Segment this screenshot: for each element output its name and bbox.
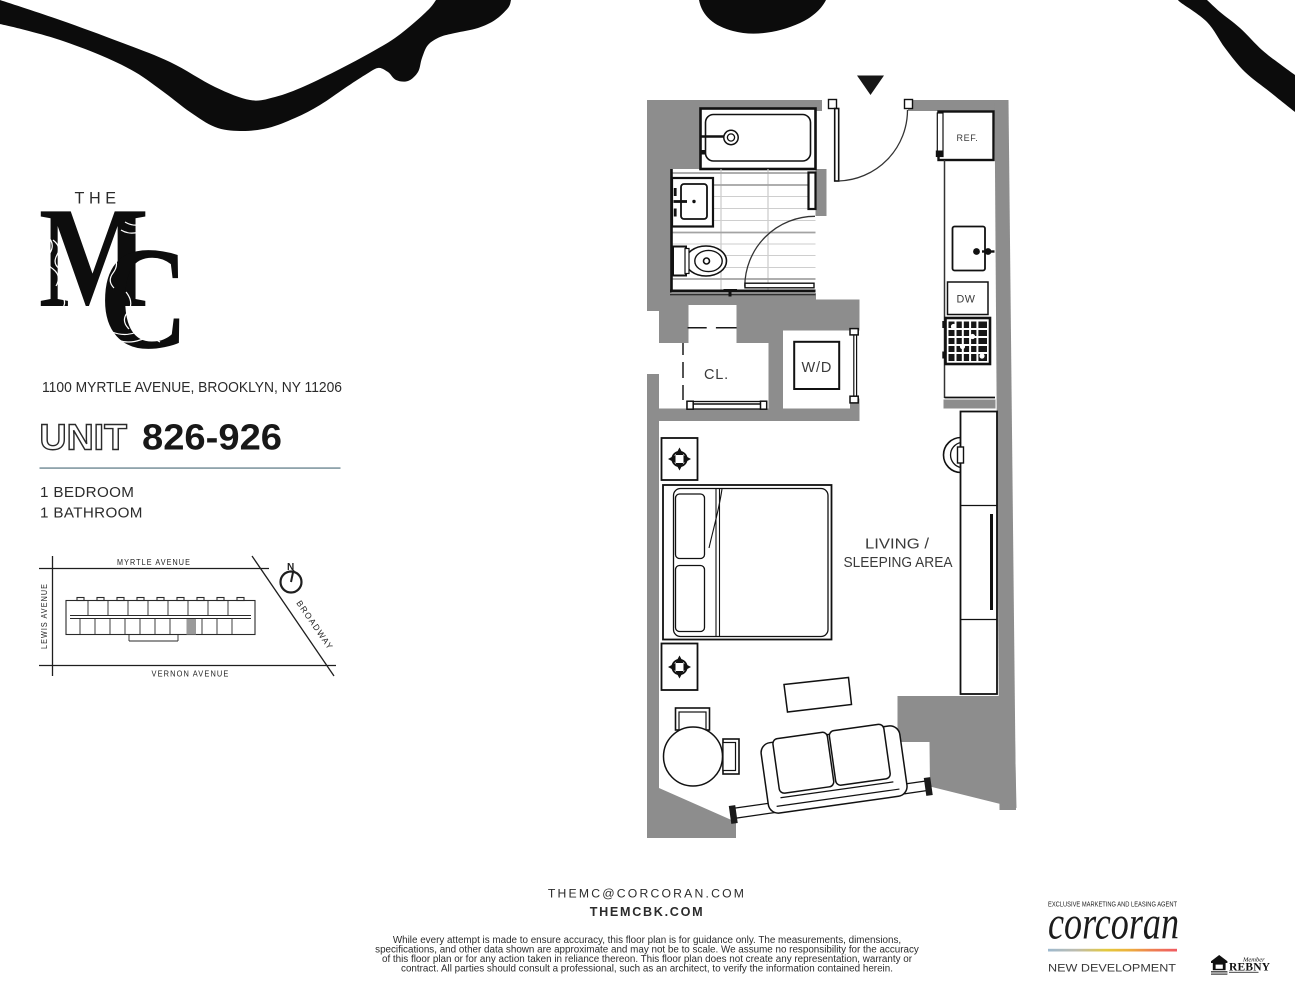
svg-text:contract. All parties should c: contract. All parties should consult a p…	[401, 964, 893, 975]
svg-text:BROADWAY: BROADWAY	[294, 598, 335, 651]
svg-text:CL.: CL.	[704, 367, 729, 383]
svg-text:C: C	[99, 218, 189, 380]
svg-text:corcoran: corcoran	[1048, 898, 1179, 950]
svg-text:826-926: 826-926	[142, 417, 282, 458]
svg-text:UNIT: UNIT	[40, 417, 128, 458]
svg-text:THEMC@CORCORAN.COM: THEMC@CORCORAN.COM	[548, 887, 746, 901]
svg-text:W/D: W/D	[802, 360, 833, 376]
svg-text:REF.: REF.	[957, 133, 979, 143]
svg-text:1100 MYRTLE AVENUE, BROOKLYN,: 1100 MYRTLE AVENUE, BROOKLYN, NY 11206	[42, 380, 342, 396]
svg-text:LIVING /: LIVING /	[865, 536, 930, 553]
svg-text:REBNY: REBNY	[1229, 962, 1271, 974]
svg-text:1 BATHROOM: 1 BATHROOM	[40, 505, 143, 522]
svg-text:SLEEPING AREA: SLEEPING AREA	[844, 554, 953, 571]
svg-text:LEWIS AVENUE: LEWIS AVENUE	[39, 583, 49, 649]
svg-text:NEW DEVELOPMENT: NEW DEVELOPMENT	[1048, 963, 1176, 975]
svg-text:DW: DW	[957, 294, 976, 306]
svg-text:1 BEDROOM: 1 BEDROOM	[40, 484, 134, 501]
svg-text:THEMCBK.COM: THEMCBK.COM	[590, 905, 705, 919]
svg-text:MYRTLE AVENUE: MYRTLE AVENUE	[117, 557, 191, 567]
svg-text:VERNON AVENUE: VERNON AVENUE	[152, 669, 230, 679]
